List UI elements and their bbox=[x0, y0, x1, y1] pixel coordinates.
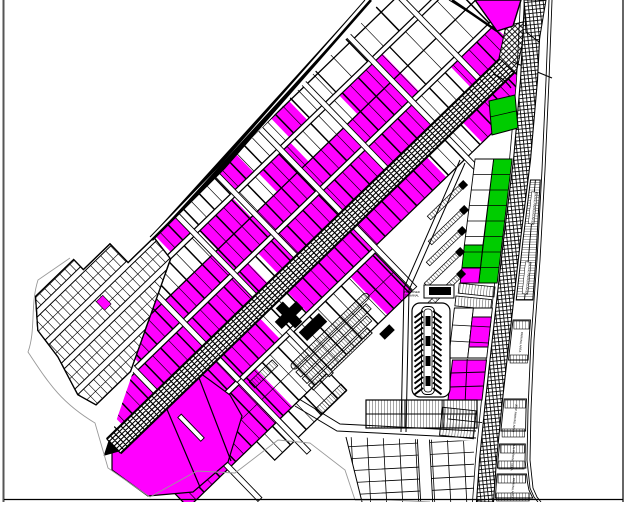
svg-text:TERMINAL: TERMINAL bbox=[405, 294, 420, 298]
